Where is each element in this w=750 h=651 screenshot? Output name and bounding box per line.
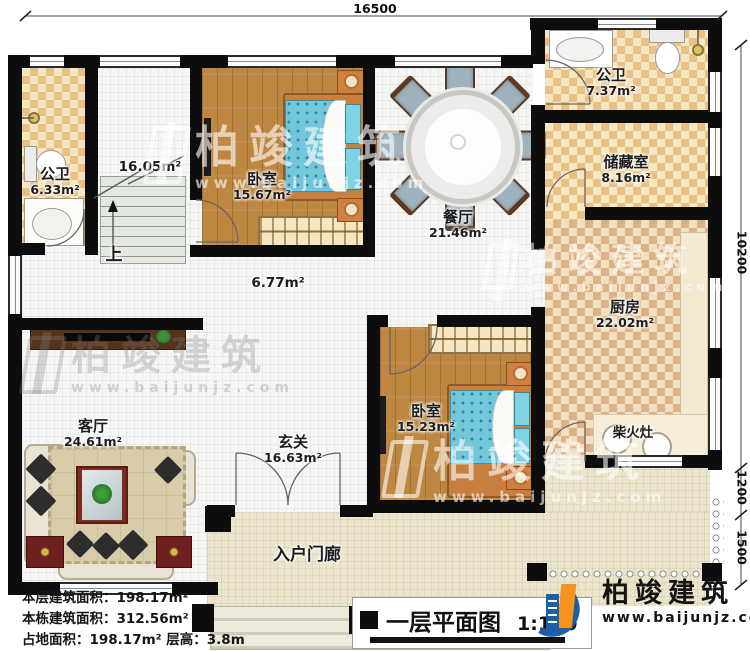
dim-right-main: 10200 [735, 231, 750, 275]
stairs-up-label: 上 [101, 246, 127, 265]
room-label-kitchen: 厨房 22.02m² [585, 299, 665, 330]
room-label-porch: 入户门廊 [227, 546, 387, 565]
brand-url: www.baijunjz.com [602, 610, 750, 626]
footer-area-line1: 本层建筑面积：198.17m² [22, 586, 189, 606]
room-label-bedroom1: 卧室 15.67m² [222, 171, 302, 202]
room-label-living: 客厅 24.61m² [53, 418, 133, 449]
footer-area-line2: 本栋建筑面积：312.56m² [22, 607, 189, 627]
hallway-area-label: 6.77m² [238, 276, 318, 291]
dim-right-mid: 1200 [735, 466, 750, 510]
room-label-storage: 储藏室 8.16m² [586, 154, 666, 185]
brand-logo-icon [532, 578, 596, 648]
floor-plan-canvas: 柏竣建筑 www.baijunjz.com 柏竣建筑 www.baijunjz.… [0, 0, 750, 651]
room-label-entry: 玄关 16.63m² [253, 434, 333, 465]
room-label-bedroom2: 卧室 15.23m² [386, 403, 466, 434]
stove-label: 柴火灶 [591, 423, 675, 441]
brand-logo: 柏竣建筑 www.baijunjz.com [532, 578, 750, 648]
dim-right-bottom: 1500 [735, 526, 750, 570]
room-label-stairwell: 16.05m² [108, 160, 192, 175]
brand-name: 柏竣建筑 [602, 578, 750, 610]
room-label-bath1: 公卫 6.33m² [15, 166, 95, 197]
room-label-bath2: 公卫 7.37m² [571, 67, 651, 98]
room-label-dining: 餐厅 21.46m² [418, 209, 498, 240]
title-block-square [360, 611, 378, 629]
footer-area-line3: 占地面积：198.17m² 层高：3.8m [22, 628, 245, 648]
dim-top: 16500 [330, 1, 420, 16]
